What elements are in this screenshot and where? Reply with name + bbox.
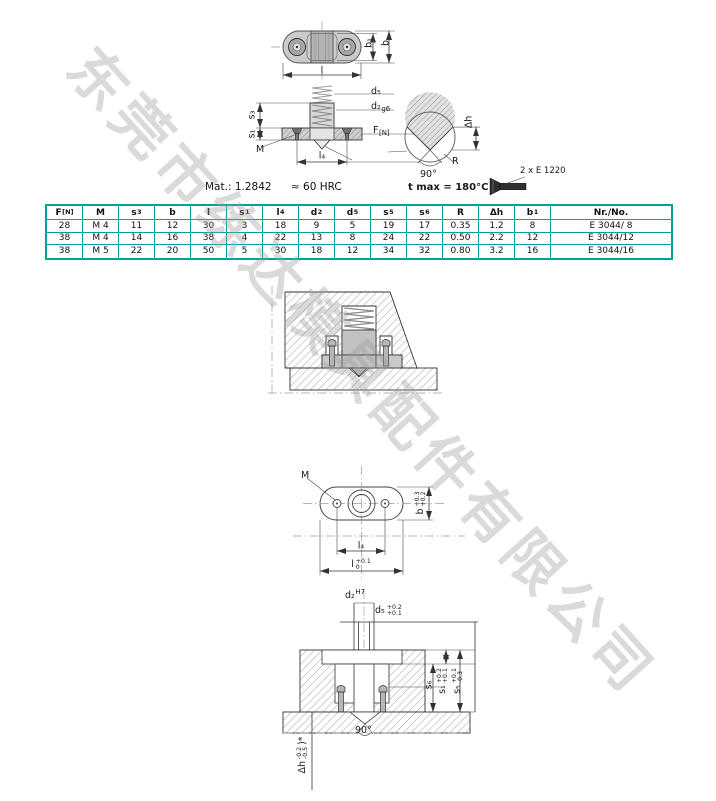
dim-label-s6: s₆ xyxy=(424,681,434,690)
table-cell: 0.80 xyxy=(443,245,479,258)
table-cell: 12 xyxy=(515,233,551,246)
table-cell: 28 xyxy=(47,220,83,233)
table-col-header: s1 xyxy=(227,206,263,220)
table-cell: E 3044/12 xyxy=(551,233,671,246)
table-col-header: d2 xyxy=(299,206,335,220)
table-col-header: d5 xyxy=(335,206,371,220)
dim-label-thread-bottom: M xyxy=(301,471,309,481)
note-tmax: t max = 180°C xyxy=(408,183,488,193)
table-cell: 24 xyxy=(371,233,407,246)
spec-table: F[N]Ms3bls1l4d2d5s5s6RΔhb1Nr./No.28M 411… xyxy=(45,204,673,260)
table-col-header: b1 xyxy=(515,206,551,220)
table-cell: 12 xyxy=(155,220,191,233)
table-col-header: Δh xyxy=(479,206,515,220)
bottom-view-drawing xyxy=(293,463,468,585)
table-cell: 32 xyxy=(407,245,443,258)
table-col-header: M xyxy=(83,206,119,220)
dim-label-dh-tol: Δh -0.2-0.5 )* xyxy=(297,736,309,773)
dim-label-s1: s₁ xyxy=(247,130,257,139)
note-screw-ref: 2 x E 1220 xyxy=(520,167,566,176)
table-cell: 2.2 xyxy=(479,233,515,246)
dim-label-s1-tol: s₁ +0.2+0.1 xyxy=(437,668,449,694)
dim-label-radius: R xyxy=(452,157,459,167)
table-cell: 22 xyxy=(263,233,299,246)
top-view-drawing xyxy=(255,10,415,85)
table-cell: 50 xyxy=(191,245,227,258)
table-cell: 14 xyxy=(119,233,155,246)
table-cell: 34 xyxy=(371,245,407,258)
table-cell: 20 xyxy=(155,245,191,258)
table-cell: 3 xyxy=(227,220,263,233)
dim-label-b: b xyxy=(381,40,391,46)
table-cell: 8 xyxy=(335,233,371,246)
dim-label-l4-bottom: l₄ xyxy=(358,541,364,551)
table-cell: 1.2 xyxy=(479,220,515,233)
mounting-screw-left xyxy=(328,340,336,367)
note-material-line: Mat.: 1.2842 ≈ 60 HRC xyxy=(205,181,342,193)
table-cell: 16 xyxy=(155,233,191,246)
dim-label-d5-tol: d₅ +0.2+0.1 xyxy=(375,605,402,617)
table-cell: 19 xyxy=(371,220,407,233)
table-cell: 12 xyxy=(335,245,371,258)
dim-label-l4: l₄ xyxy=(319,151,325,161)
table-cell: M 5 xyxy=(83,245,119,258)
dim-label-angle: 90° xyxy=(420,170,437,180)
table-cell: 17 xyxy=(407,220,443,233)
table-cell: 9 xyxy=(299,220,335,233)
dim-label-force: F[N] xyxy=(373,126,390,137)
table-cell: E 3044/16 xyxy=(551,245,671,258)
table-cell: 30 xyxy=(263,245,299,258)
stud-right xyxy=(379,686,387,713)
dim-label-dh: Δh xyxy=(464,116,474,129)
table-col-header: s6 xyxy=(407,206,443,220)
table-cell: 38 xyxy=(191,233,227,246)
dim-label-b-tol: b +0.3+0.2 xyxy=(415,491,427,514)
dim-label-d2H7: d₂H7 xyxy=(345,589,365,601)
table-cell: 22 xyxy=(119,245,155,258)
table-cell: 0.35 xyxy=(443,220,479,233)
hole-left xyxy=(289,39,306,56)
table-col-header: F[N] xyxy=(47,206,83,220)
table-cell: 22 xyxy=(407,233,443,246)
dim-label-angle-bottom: 90° xyxy=(355,726,372,736)
table-col-header: l xyxy=(191,206,227,220)
table-col-header: s5 xyxy=(371,206,407,220)
table-cell: 38 xyxy=(47,233,83,246)
stud-left xyxy=(337,686,345,713)
dim-label-s5-tol: s₅ +0.1-0.3 xyxy=(452,668,464,694)
table-col-header: l4 xyxy=(263,206,299,220)
hardness-value: ≈ 60 HRC xyxy=(291,181,342,193)
table-col-header: Nr./No. xyxy=(551,206,671,220)
table-cell: 30 xyxy=(191,220,227,233)
table-cell: 4 xyxy=(227,233,263,246)
table-cell: 5 xyxy=(227,245,263,258)
table-cell: 5 xyxy=(335,220,371,233)
table-cell: 3.2 xyxy=(479,245,515,258)
table-col-header: R xyxy=(443,206,479,220)
table-cell: 0.50 xyxy=(443,233,479,246)
hole-right xyxy=(339,39,356,56)
table-col-header: s3 xyxy=(119,206,155,220)
material-value: Mat.: 1.2842 xyxy=(205,181,272,193)
dim-label-b1: b₁ xyxy=(364,38,374,48)
dim-label-d2g6: d₂g6 xyxy=(371,102,390,113)
dim-label-l-tol: l +0.10 xyxy=(351,559,371,571)
table-cell: M 4 xyxy=(83,220,119,233)
dim-label-s3: s₃ xyxy=(247,111,257,120)
installation-drawing xyxy=(268,284,453,402)
table-cell: 11 xyxy=(119,220,155,233)
table-cell: 18 xyxy=(299,245,335,258)
table-col-header: b xyxy=(155,206,191,220)
dim-label-thread: M xyxy=(256,145,264,155)
dim-label-l: l xyxy=(321,66,324,76)
table-cell: 13 xyxy=(299,233,335,246)
table-cell: 38 xyxy=(47,245,83,258)
table-cell: 16 xyxy=(515,245,551,258)
countersunk-screw-icon xyxy=(490,178,526,195)
mounting-screw-right xyxy=(382,340,390,367)
table-cell: 8 xyxy=(515,220,551,233)
table-cell: 18 xyxy=(263,220,299,233)
table-cell: E 3044/ 8 xyxy=(551,220,671,233)
dim-label-d5: d₅ xyxy=(371,87,381,97)
table-cell: M 4 xyxy=(83,233,119,246)
